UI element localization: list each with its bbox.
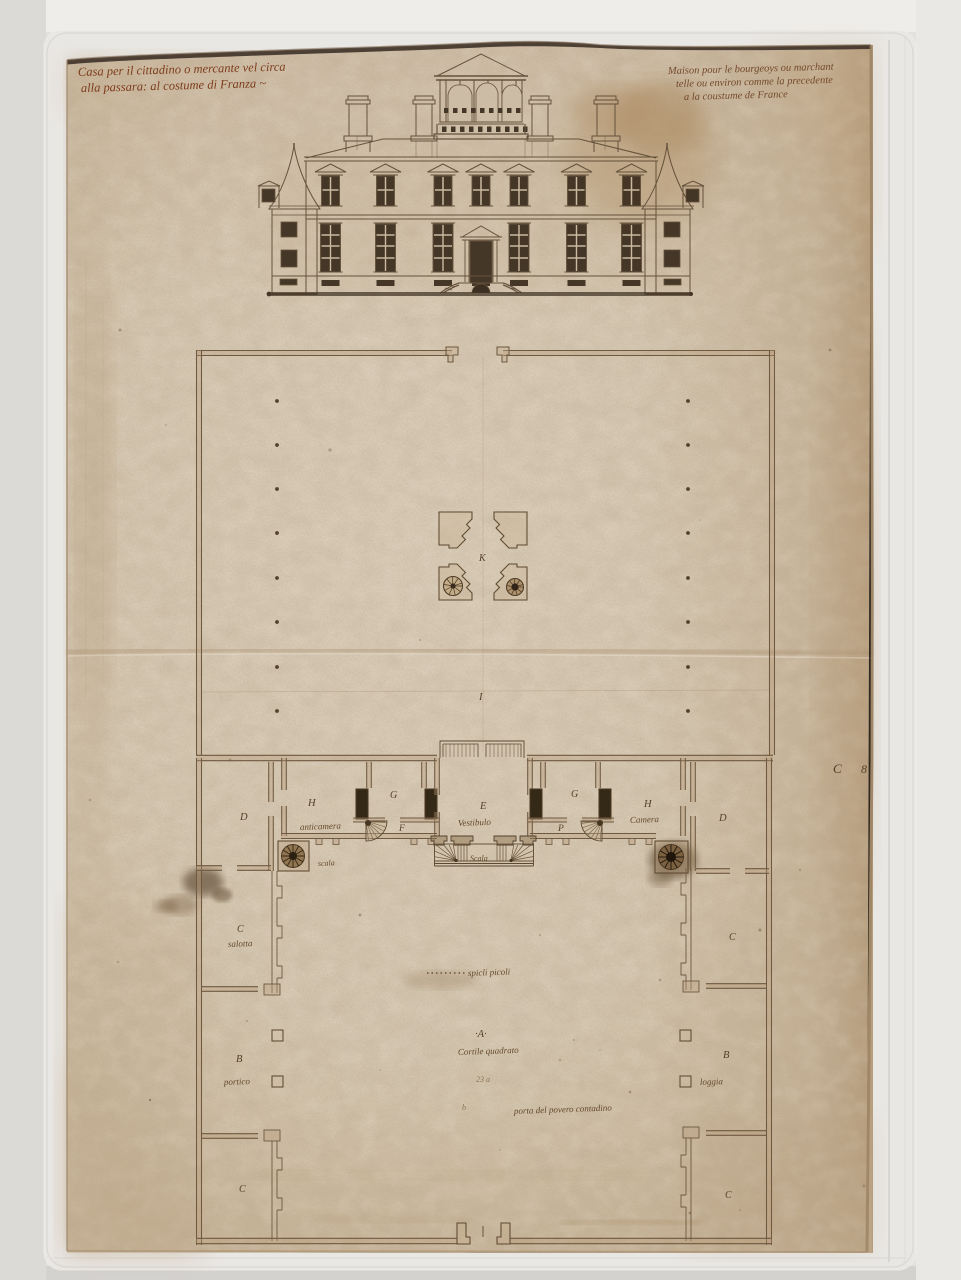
svg-text:portico: portico [223,1076,251,1087]
svg-text:G: G [390,790,397,801]
svg-text:23 a: 23 a [476,1075,490,1084]
svg-text:Vestibulo: Vestibulo [458,817,492,828]
svg-text:B: B [236,1054,243,1065]
svg-text:D: D [718,813,727,824]
svg-text:C: C [725,1190,732,1201]
svg-text:scala: scala [318,858,335,868]
svg-text:loggia: loggia [700,1076,724,1087]
svg-text:spicli picoli: spicli picoli [468,967,511,978]
svg-text:H: H [643,799,653,810]
svg-text:P: P [557,824,564,834]
svg-text:Camera: Camera [630,814,660,825]
svg-text:·A·: ·A· [475,1029,487,1040]
svg-text:anticamera: anticamera [300,821,342,832]
svg-text:Cortile quadrato: Cortile quadrato [458,1045,520,1057]
svg-text:H: H [307,798,317,809]
svg-text:b: b [462,1103,466,1112]
svg-text:K: K [478,553,487,564]
svg-text:F: F [398,824,405,834]
svg-text:C: C [729,932,736,943]
svg-text:C: C [833,761,842,776]
svg-text:D: D [239,812,248,823]
svg-text:salotta: salotta [228,938,253,949]
svg-text:B: B [723,1050,730,1061]
svg-text:8: 8 [861,762,867,776]
svg-text:I: I [478,692,483,703]
svg-text:C: C [239,1184,246,1195]
svg-text:Scala: Scala [470,854,488,863]
svg-text:G: G [571,789,578,800]
svg-text:E: E [479,801,487,812]
svg-text:C: C [237,924,244,935]
